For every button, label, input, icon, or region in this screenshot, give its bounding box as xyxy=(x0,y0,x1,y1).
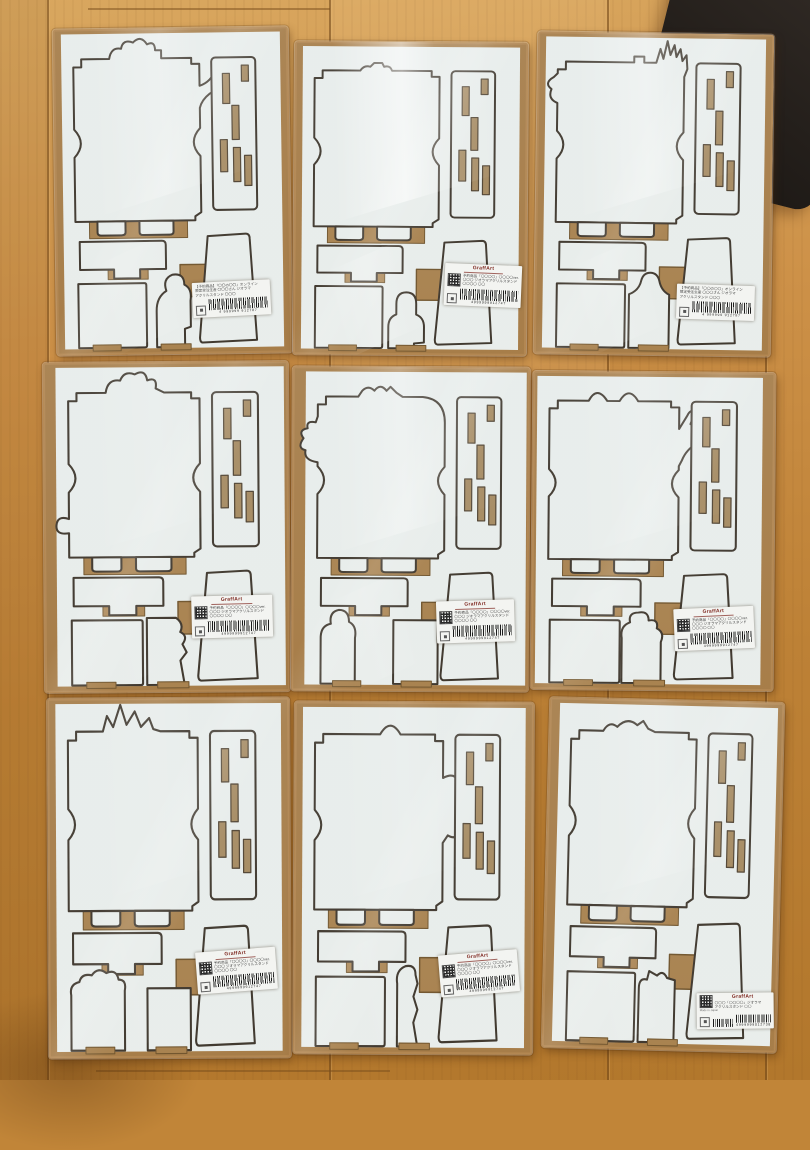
pkg-7: GraffArt 予約商品「〇〇〇〇」〇〇〇〇ver. 〇〇〇 ジオラマアクリル… xyxy=(47,697,291,1058)
approval-stamp xyxy=(679,306,689,316)
approval-stamp xyxy=(196,305,206,315)
strip-slot xyxy=(486,744,493,761)
frame-tab xyxy=(97,221,125,235)
strip-slot xyxy=(220,140,227,172)
label-text-line: 〇〇〇〇 〇〇 xyxy=(210,613,270,619)
product-label: GraffArt 予約商品「〇〇〇〇」〇〇〇〇ver. 〇〇〇 ジオラマアクリル… xyxy=(195,947,278,995)
cutout-gap xyxy=(647,1039,677,1046)
strip-slot xyxy=(232,105,239,139)
main-frame-piece xyxy=(55,372,200,558)
cutout-gap xyxy=(330,1043,359,1050)
strip-slot xyxy=(475,787,482,824)
cutout-gap xyxy=(161,344,191,350)
strip-slot xyxy=(724,498,731,527)
cutout-gap xyxy=(329,345,357,351)
cutout-gap xyxy=(87,682,116,688)
main-frame-piece xyxy=(546,39,688,223)
approval-stamp xyxy=(200,982,211,993)
approval-stamp xyxy=(443,984,454,995)
barcode xyxy=(713,1018,733,1026)
cutout-gap xyxy=(156,1047,187,1054)
cutout-gap xyxy=(638,345,668,351)
bottom-left-piece xyxy=(566,971,635,1042)
product-label: GraffArt 予約商品「〇〇〇〇」〇〇〇〇ver. 〇〇〇 ジオラマアクリル… xyxy=(191,595,273,639)
strip-slot xyxy=(477,445,484,479)
strip-slot xyxy=(703,145,710,177)
main-frame-piece xyxy=(567,719,697,907)
qr-code xyxy=(700,995,713,1008)
strip-slot xyxy=(482,166,489,195)
product-label: GraffArt 予約商品「〇〇〇〇」〇〇〇〇ver. 〇〇〇 ジオラマアクリル… xyxy=(444,263,523,308)
product-label: 【予約商品】「〇〇の〇〇」オンライン 限定受注生産 〇〇〇さん ジオラマ アクリ… xyxy=(192,280,271,318)
cutout-gap xyxy=(396,345,426,351)
die-cut-board xyxy=(293,41,528,356)
strip-slot xyxy=(716,153,723,187)
barcode xyxy=(736,1013,771,1021)
frame-tab xyxy=(377,227,411,241)
barcode-digits: 4999999012738 xyxy=(737,1021,772,1025)
bottom-left-piece xyxy=(556,283,625,347)
strip-slot xyxy=(737,840,745,872)
bottom-left-piece xyxy=(315,286,383,348)
cutout-gap xyxy=(86,1047,115,1054)
pkg-5: GraffArt 予約商品「〇〇〇〇」〇〇〇〇ver. 〇〇〇 ジオラマアクリル… xyxy=(291,366,530,691)
frame-tab xyxy=(136,557,172,571)
figure-piece xyxy=(638,971,676,1043)
strip-slot xyxy=(707,79,714,109)
pkg-6: GraffArt 予約商品「〇〇〇〇」〇〇〇〇ver. 〇〇〇 ジオラマアクリル… xyxy=(531,371,776,691)
strip-slot xyxy=(738,743,745,760)
strip-slot xyxy=(478,487,485,521)
qr-code xyxy=(448,273,462,287)
product-label: GraffArt 〇〇〇「〇〇〇〇」ジオラマ アクリルスタンド 〇〇 Made … xyxy=(697,992,775,1028)
approval-stamp xyxy=(447,293,457,303)
figure-piece xyxy=(397,966,418,1047)
product-label: GraffArt 予約商品「〇〇〇〇」〇〇〇〇ver. 〇〇〇 ジオラマアクリル… xyxy=(438,949,520,997)
pkg-8: GraffArt 予約商品「〇〇〇〇」〇〇〇〇ver. 〇〇〇 ジオラマアクリル… xyxy=(293,701,534,1054)
frame-tab xyxy=(92,557,121,571)
qr-code xyxy=(194,606,207,619)
strip-slot xyxy=(714,822,722,857)
die-cut-board xyxy=(47,697,291,1058)
pkg-2: GraffArt 予約商品「〇〇〇〇」〇〇〇〇ver. 〇〇〇 ジオラマアクリル… xyxy=(293,41,528,356)
bottom-left-piece xyxy=(78,283,147,348)
strip-slot xyxy=(471,118,478,151)
strip-slot xyxy=(726,72,733,88)
frame-tab xyxy=(614,560,649,574)
frame-tab xyxy=(379,910,414,925)
strip-slot xyxy=(699,482,706,513)
barcode-digits: 4999999912747 xyxy=(704,643,739,649)
pkg-9: GraffArt 〇〇〇「〇〇〇〇」ジオラマ アクリルスタンド 〇〇 Made … xyxy=(542,697,784,1053)
strip-slot xyxy=(476,832,483,869)
figure-piece xyxy=(621,612,662,683)
bottom-left-piece xyxy=(71,970,126,1051)
strip-slot xyxy=(465,479,472,511)
cutout-gap xyxy=(158,682,189,688)
cutout-gap xyxy=(570,344,598,350)
pkg-4: GraffArt 予約商品「〇〇〇〇」〇〇〇〇ver. 〇〇〇 ジオラマアクリル… xyxy=(43,361,290,693)
qr-code xyxy=(439,611,452,624)
bottom-left-piece xyxy=(315,977,385,1047)
strip-slot xyxy=(468,413,475,443)
barcode-digits: 4 999999 912787 xyxy=(702,313,741,318)
frame-tab xyxy=(620,223,654,237)
pkg-1: 【予約商品】「〇〇の〇〇」オンライン 限定受注生産 〇〇〇さん ジオラマ アクリ… xyxy=(53,26,293,355)
strip-slot xyxy=(241,65,248,81)
main-frame-piece xyxy=(300,386,445,558)
barcode-digits: 4999999912747 xyxy=(465,636,500,641)
pkg-3: 【予約商品】「〇〇の〇〇」オンライン 限定受注生産 〇〇〇さん ジオラマ アクリ… xyxy=(534,31,774,356)
strip-slot xyxy=(245,155,252,185)
frame-tab xyxy=(91,911,120,927)
frame-tab xyxy=(630,906,664,922)
figure-piece xyxy=(393,620,438,684)
figure-piece xyxy=(147,988,191,1050)
strip-slot xyxy=(489,495,496,525)
qr-code xyxy=(441,964,455,978)
strip-slot xyxy=(463,824,470,859)
main-frame-piece xyxy=(314,63,440,228)
die-cut-board xyxy=(293,701,534,1054)
cutout-gap xyxy=(401,681,431,687)
approval-stamp xyxy=(439,631,449,641)
frame-tab xyxy=(139,221,173,236)
cutout-gap xyxy=(93,345,121,351)
strip-slot xyxy=(462,87,469,116)
main-frame-piece xyxy=(68,704,199,911)
product-label: GraffArt 予約商品「〇〇〇〇」〇〇〇〇ver. 〇〇〇 ジオラマアクリル… xyxy=(435,599,514,643)
frame-tab xyxy=(382,558,416,572)
cutout-gap xyxy=(399,1043,430,1050)
frame-tab xyxy=(578,222,606,236)
strip-slot xyxy=(712,490,719,523)
barcode-digits: 4999999912747 xyxy=(221,631,256,636)
frame-tab xyxy=(589,905,617,921)
product-label: GraffArt 予約商品「〇〇〇〇」〇〇〇〇ver. 〇〇〇 ジオラマアクリル… xyxy=(673,606,755,651)
strip-slot xyxy=(222,73,229,103)
die-cut-board xyxy=(43,361,290,693)
qr-code xyxy=(198,961,212,975)
strip-slot xyxy=(719,751,727,783)
strip-slot xyxy=(231,784,238,822)
strip-slot xyxy=(246,491,254,522)
strip-slot xyxy=(219,822,226,857)
strip-slot xyxy=(722,410,729,426)
strip-slot xyxy=(241,740,248,758)
strip-slot xyxy=(727,161,734,191)
strip-slot xyxy=(221,749,228,782)
frame-tab xyxy=(336,910,365,925)
label-text-line: 〇〇〇〇 〇〇 xyxy=(454,618,511,624)
strip-slot xyxy=(243,400,250,416)
die-cut-board xyxy=(291,366,530,691)
bottom-left-piece xyxy=(72,620,143,685)
strip-slot xyxy=(466,752,473,785)
strip-slot xyxy=(243,839,250,872)
approval-stamp xyxy=(700,1016,710,1026)
approval-stamp xyxy=(677,639,687,649)
strip-slot xyxy=(224,408,232,439)
strip-slot xyxy=(472,158,479,191)
strip-slot xyxy=(703,417,710,446)
strip-slot xyxy=(459,150,466,181)
frame-tab xyxy=(571,559,600,573)
strip-slot xyxy=(726,831,734,868)
frame-tab xyxy=(339,558,367,572)
strip-slot xyxy=(481,79,488,94)
strip-slot xyxy=(221,475,229,508)
strip-slot xyxy=(712,449,719,482)
frame-tab xyxy=(335,226,363,240)
packages-layer: 【予約商品】「〇〇の〇〇」オンライン 限定受注生産 〇〇〇さん ジオラマ アクリ… xyxy=(0,0,810,1080)
strip-slot xyxy=(232,831,239,869)
cutout-gap xyxy=(333,681,361,687)
frame-tab xyxy=(135,911,170,927)
figure-piece xyxy=(147,618,187,685)
strip-slot xyxy=(233,441,241,476)
label-text-line: アクリルスタンド 〇〇 xyxy=(715,1004,771,1009)
cutout-gap xyxy=(564,679,593,685)
approval-stamp xyxy=(195,627,205,637)
strip-slot xyxy=(715,111,722,145)
strip-slot xyxy=(727,786,735,823)
bottom-left-piece xyxy=(549,620,620,683)
strip-slot xyxy=(233,147,240,181)
strip-slot xyxy=(487,405,494,421)
product-label: 【予約商品】「〇〇の〇〇」オンライン 限定受注生産 〇〇〇さん ジオラマ アクリ… xyxy=(676,284,755,321)
strip-slot xyxy=(234,483,242,518)
cutout-gap xyxy=(580,1037,608,1044)
barcode-digits: 4999999912747 xyxy=(472,300,507,306)
qr-code xyxy=(676,618,690,632)
cutout-gap xyxy=(634,680,665,686)
barcode-digits: 4 999999 912787 xyxy=(219,309,258,315)
strip-slot xyxy=(487,841,494,874)
